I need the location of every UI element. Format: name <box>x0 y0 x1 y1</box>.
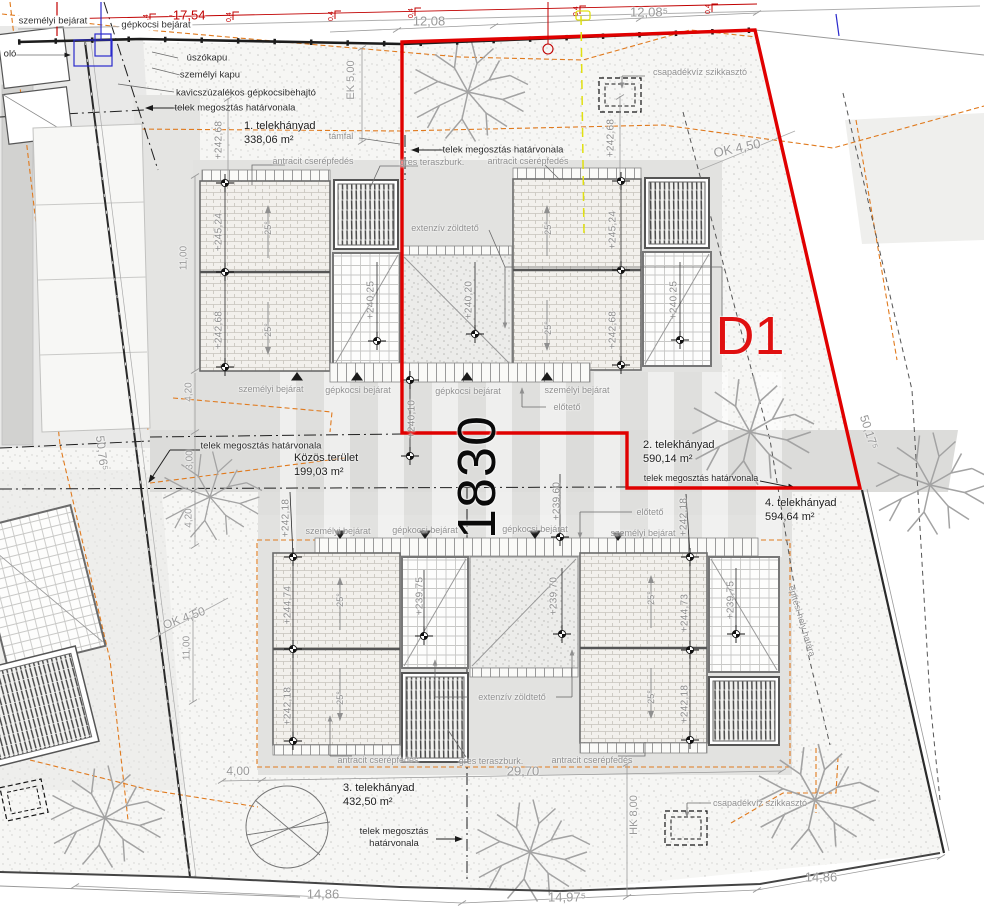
plot4-title: 4. telekhányad <box>765 497 837 511</box>
dim-17-54: -17,54 <box>169 8 206 23</box>
elev-242-68-ul: +242,68 <box>214 311 225 350</box>
elev-240-25-ur: +240,25 <box>669 281 680 320</box>
dim-4-00: 4,00 <box>226 764 249 778</box>
label-green-roof-upper: extenzív zöldtető <box>411 223 479 233</box>
elev-240-20: +240,20 <box>464 281 475 320</box>
ent-personal-l1: személyi bejárat <box>305 526 370 536</box>
plot3-label: 3. telekhányad 432,50 m² <box>343 782 415 810</box>
elev-245-24-ul: +245,24 <box>214 213 225 252</box>
elev-239-70: +239,70 <box>549 577 560 616</box>
label-storage-partial: oló <box>4 49 17 60</box>
dim-hk-8-00: HK 8,00 <box>628 795 640 835</box>
common-area-value: 199,03 m² <box>294 466 358 480</box>
plot1-title: 1. telekhányad <box>244 120 316 134</box>
site-plan: 0,4 0,4 0,4 0,4 0,4 0,4 személyi bejárat… <box>0 0 984 911</box>
fence-dim: 0,4 <box>705 4 712 14</box>
label-floating-gate: úszókapu <box>187 53 228 64</box>
dim-14-86-b: 14,86 <box>805 870 838 885</box>
label-division-top: telek megosztás határvonala <box>443 145 564 156</box>
dim-4-20-b: 4,20 <box>184 508 195 527</box>
elev-244-74: +244,74 <box>283 586 294 625</box>
dim-12-08-5: 12,08⁵ <box>630 5 668 20</box>
label-division-topleft: telek megosztás határvonala <box>175 103 296 114</box>
slope-ul-top: 25° <box>263 221 273 235</box>
elev-240-10: +240,10 <box>407 400 418 439</box>
label-division-bottom: telek megosztás határvonala <box>351 826 437 850</box>
elev-239-75-r: +239,75 <box>726 581 737 620</box>
slope-lr-top: 25° <box>646 591 656 605</box>
fence-dim: 0,4 <box>226 12 233 22</box>
label-retaining-wall: támfal <box>329 131 354 141</box>
common-area-title: Közös terület <box>294 452 358 466</box>
label-tile-roof-ul: antracit cserépfedés <box>272 156 353 166</box>
elev-244-73: +244,73 <box>680 594 691 633</box>
dim-11-00-ll: 11,00 <box>182 636 193 660</box>
dim-29-70: 29,70 <box>507 764 540 779</box>
ent-personal-l2: személyi bejárat <box>610 528 675 538</box>
label-canopy-upper: előtető <box>553 402 580 412</box>
plot4-area: 594,64 m² <box>765 511 837 525</box>
label-soakaway-bottom: csapadékvíz szikkasztó <box>713 798 807 808</box>
ent-car-l2: gépkocsi bejárat <box>502 524 568 534</box>
unit-d1-label: D1 <box>715 305 784 367</box>
elev-242-68-ur: +242,68 <box>608 311 619 350</box>
slope-ur-bot: 25° <box>543 321 553 335</box>
plot1-area: 338,06 m² <box>244 134 316 148</box>
label-tile-roof-ur: antracit cserépfedés <box>487 156 568 166</box>
elev-245-24-ur: +245,24 <box>608 211 619 250</box>
slope-ul-bot: 25° <box>263 323 273 337</box>
dim-ek-5-00: EK 5,00 <box>345 60 357 99</box>
label-personal-gate: személyi kapu <box>180 70 240 81</box>
ent-personal-u1: személyi bejárat <box>238 384 303 394</box>
elev-239-60: +239,60 <box>552 482 563 521</box>
plot4-label: 4. telekhányad 594,64 m² <box>765 497 837 525</box>
slope-lr-bot: 25° <box>646 690 656 704</box>
dim-14-86-a: 14,86 <box>307 887 340 902</box>
plot3-title: 3. telekhányad <box>343 782 415 796</box>
dim-3-00: 3,00 <box>185 450 196 469</box>
elev-242-18-ll: +242,18 <box>283 687 294 726</box>
label-division-p2: telek megosztás határvonala <box>644 473 759 483</box>
parcel-number: 1830 <box>446 415 508 539</box>
label-soakaway-top: csapadékvíz szikkasztó <box>653 67 747 77</box>
label-personal-entrance-street: személyi bejárat <box>17 16 90 27</box>
elev-239-75-l: +239,75 <box>415 577 426 616</box>
plot3-area: 432,50 m² <box>343 796 415 810</box>
ent-car-u2: gépkocsi bejárat <box>435 386 501 396</box>
label-terrace-top: gres teraszburk. <box>400 157 465 167</box>
ent-car-l1: gépkocsi bejárat <box>392 525 458 535</box>
common-area-label: Közös terület 199,03 m² <box>294 452 358 480</box>
label-gravel-driveway: kavicszúzalékos gépkocsibehajtó <box>176 88 316 99</box>
slope-ll-bot: 25° <box>335 691 345 705</box>
slope-ur-top: 25° <box>543 221 553 235</box>
label-green-roof-lower: extenzív zöldtető <box>478 692 546 702</box>
elev-242-18-lr: +242,18 <box>680 685 691 724</box>
ent-personal-u2: személyi bejárat <box>544 385 609 395</box>
label-canopy-lower: előtető <box>636 507 663 517</box>
dim-14-97-5: 14,97⁵ <box>548 890 586 905</box>
label-tile-roof-lr: antracit cserépfedés <box>551 755 632 765</box>
elev-242-18-midl: +242,18 <box>281 499 292 538</box>
elev-242-68-dim-left: +242,68 <box>214 121 225 160</box>
dim-4-20-a: 4,20 <box>184 382 195 401</box>
label-tile-roof-ll: antracit cserépfedés <box>337 755 418 765</box>
plot2-label: 2. telekhányad 590,14 m² <box>643 439 715 467</box>
slope-ll-top: 25° <box>335 593 345 607</box>
dim-11-00-ul: 11,00 <box>179 246 190 270</box>
elev-240-25-ul: +240,25 <box>366 281 377 320</box>
dim-12-08: 12,08 <box>413 14 446 29</box>
elev-242-18-midr: +242,18 <box>679 498 690 537</box>
plot2-title: 2. telekhányad <box>643 439 715 453</box>
fence-dim: 0,4 <box>328 11 335 21</box>
elev-242-68-dim-right: +242,68 <box>606 119 617 158</box>
plot2-area: 590,14 m² <box>643 453 715 467</box>
ent-car-u1: gépkocsi bejárat <box>325 385 391 395</box>
plot1-label: 1. telekhányad 338,06 m² <box>244 120 316 148</box>
label-division-mid: telek megosztás határvonala <box>201 441 322 452</box>
